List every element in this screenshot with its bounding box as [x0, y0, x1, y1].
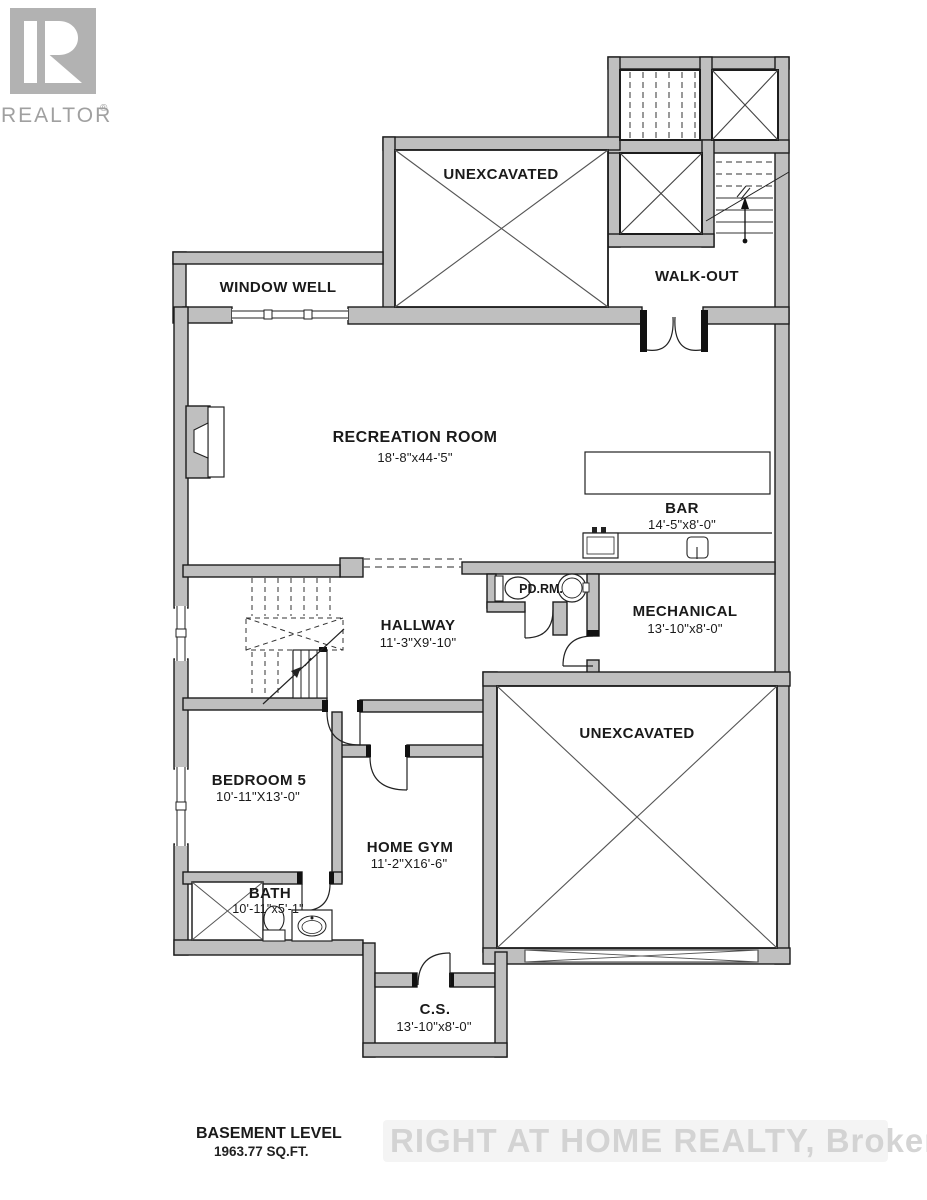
walkout-double-door	[640, 310, 708, 352]
label-window-well: WINDOW WELL	[220, 279, 337, 296]
dims-bedroom-5: 10'-11"X13'-0"	[216, 789, 300, 804]
label-hallway: HALLWAY	[381, 617, 456, 634]
shaft-x-box-mid	[620, 153, 702, 234]
brokerage-watermark: RIGHT AT HOME REALTY, Brokerage	[383, 1120, 927, 1162]
label-walk-out: WALK-OUT	[655, 268, 739, 285]
realtor-r-bar	[24, 21, 37, 83]
label-cold-storage: C.S.	[420, 1001, 451, 1018]
realtor-wordmark: REALTOR	[1, 104, 112, 127]
toilet-tank-icon	[495, 576, 503, 601]
label-mechanical: MECHANICAL	[633, 603, 738, 620]
shaft-x-box-top	[712, 70, 778, 140]
dims-bar: 14'-5"x8'-0"	[648, 517, 716, 532]
registered-mark: ®	[100, 103, 108, 114]
powder-room-door	[525, 610, 553, 638]
bar-fixture-icon	[687, 537, 708, 559]
left-window-bedroom	[175, 767, 187, 846]
label-unexcavated-top: UNEXCAVATED	[443, 166, 558, 183]
level-title: BASEMENT LEVEL	[196, 1125, 342, 1142]
label-recreation-room: RECREATION ROOM	[333, 429, 498, 446]
hallway-stairs	[246, 578, 344, 704]
dims-bath: 10'-11"x5'-1"	[232, 902, 304, 916]
dims-hallway: 11'-3"X9'-10"	[380, 635, 457, 650]
garage-slab-band	[525, 950, 758, 962]
area-value: 1963.77 SQ.FT.	[214, 1144, 309, 1159]
label-bedroom-5: BEDROOM 5	[212, 772, 306, 789]
dims-mechanical: 13'-10"x8'-0"	[647, 621, 723, 636]
basement-floor-plan: REALTOR ®	[0, 0, 927, 1200]
bar-sink-icon	[583, 527, 618, 558]
left-window-hallway	[175, 606, 187, 661]
realtor-logo: REALTOR ®	[1, 8, 112, 127]
plan-footer: BASEMENT LEVEL 1963.77 SQ.FT.	[196, 1125, 342, 1159]
floor-plan-page: REALTOR ®	[0, 0, 927, 1200]
label-powder-room: PD.RM.	[519, 582, 563, 596]
dashed-opening	[363, 559, 462, 567]
label-bar: BAR	[665, 500, 699, 517]
dims-recreation-room: 18'-8"x44-'5"	[377, 450, 453, 465]
up-arrow	[741, 197, 749, 243]
window-well-window	[232, 309, 348, 320]
bar-counter	[585, 452, 770, 494]
hatched-stair-box	[620, 70, 700, 140]
label-bath: BATH	[249, 885, 291, 902]
cold-storage-door	[412, 953, 454, 987]
dims-home-gym: 11'-2"X16'-6"	[371, 856, 448, 871]
label-home-gym: HOME GYM	[367, 839, 454, 856]
label-unexcavated-lower: UNEXCAVATED	[579, 725, 694, 742]
watermark-text: RIGHT AT HOME REALTY, Brokerage	[390, 1122, 927, 1159]
dims-cold-storage: 13'-10"x8'-0"	[396, 1019, 472, 1034]
home-gym-door	[366, 745, 410, 790]
